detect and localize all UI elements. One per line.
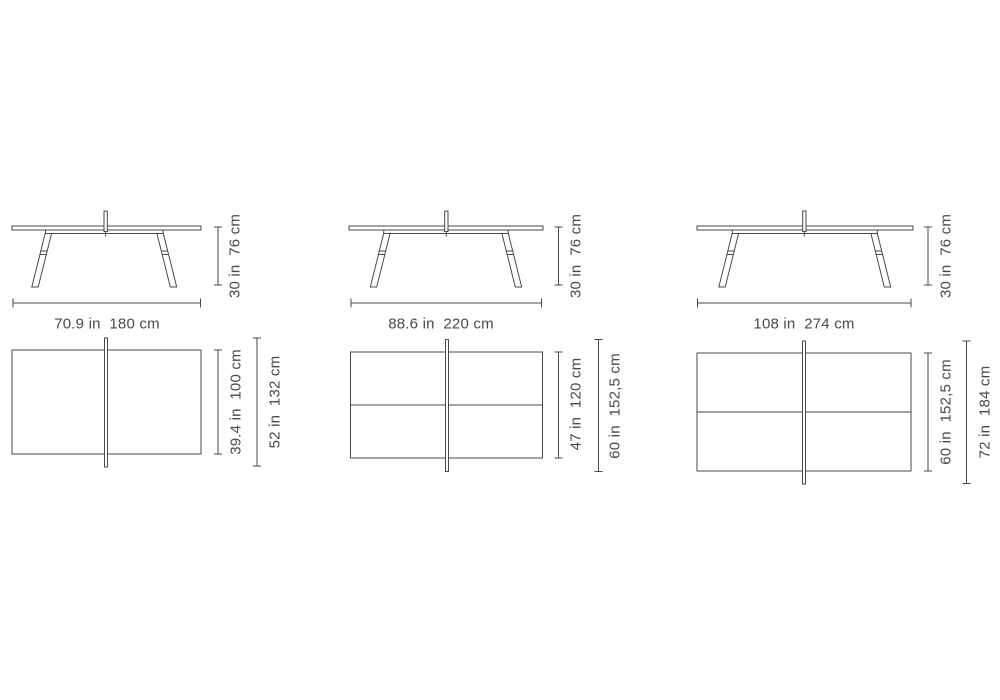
table-leg-right (502, 233, 522, 287)
diagram-canvas: 70.9 in 180 cm 30 in 76 cm 39.4 in 100 c… (0, 0, 1000, 700)
table-220-side-view (349, 211, 563, 308)
net-line (105, 338, 108, 467)
table-width-dimension-line (214, 350, 222, 454)
side-height-dimension-label: 30 in 76 cm (227, 213, 242, 297)
table-leg-left (32, 233, 52, 287)
table-274-top-view (697, 341, 971, 484)
side-width-dimension-label: 88.6 in 220 cm (388, 316, 494, 331)
top-width-dimension-label: 39.4 in 100 cm (228, 349, 243, 455)
net-width-dimension-line (253, 338, 261, 466)
side-height-dimension-label: 30 in 76 cm (939, 213, 954, 297)
top-width-dimension-label: 47 in 120 cm (568, 358, 583, 451)
net-width-dimension-line (595, 340, 603, 472)
height-dimension-line (214, 227, 222, 285)
height-dimension-line (555, 227, 563, 285)
top-net-dimension-label: 60 in 152,5 cm (608, 353, 623, 459)
net-line (803, 341, 806, 484)
width-dimension-line (13, 299, 201, 308)
width-dimension-line (351, 299, 542, 308)
table-leg-left (370, 233, 390, 287)
top-width-dimension-label: 60 in 152,5 cm (939, 359, 954, 465)
table-220-top-view (351, 340, 603, 472)
table-leg-right (871, 233, 891, 287)
table-180-side-view (12, 211, 222, 308)
top-net-dimension-label: 52 in 132 cm (268, 356, 283, 449)
table-leg-right (157, 233, 177, 287)
table-width-dimension-line (924, 353, 932, 471)
table-leg-left (719, 233, 739, 287)
table-274-side-view (697, 211, 932, 308)
side-height-dimension-label: 30 in 76 cm (569, 213, 584, 297)
top-net-dimension-label: 72 in 184 cm (978, 366, 993, 459)
net-width-dimension-line (963, 341, 971, 484)
table-width-dimension-line (555, 352, 563, 458)
side-width-dimension-label: 108 in 274 cm (753, 316, 854, 331)
table-180-top-view (12, 338, 261, 467)
width-dimension-line (698, 299, 912, 308)
side-width-dimension-label: 70.9 in 180 cm (54, 316, 160, 331)
table-diagrams-linework (0, 0, 1000, 700)
net-line (446, 340, 449, 472)
height-dimension-line (924, 227, 932, 285)
